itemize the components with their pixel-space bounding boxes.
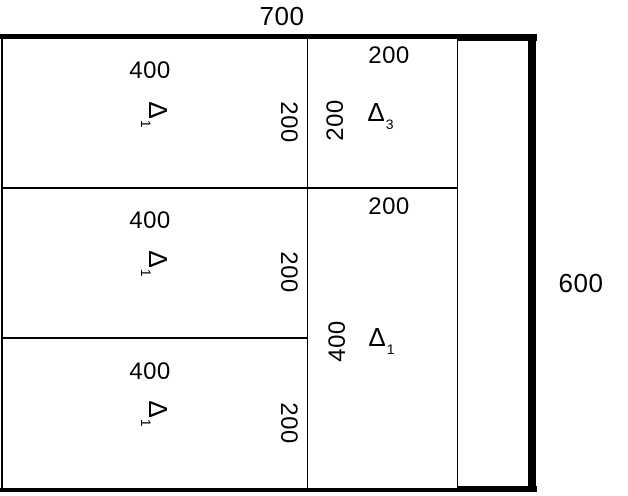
delta-subscript: 1 bbox=[139, 120, 153, 128]
left-room-3-width-dimension: 400 bbox=[129, 360, 171, 384]
delta-symbol: Δ bbox=[367, 97, 384, 127]
left-room-3-delta-marker: Δ1 bbox=[145, 400, 171, 425]
partition-vertical-1 bbox=[307, 36, 309, 488]
delta-subscript: 1 bbox=[139, 269, 153, 277]
left-room-2-width-dimension: 400 bbox=[129, 209, 171, 233]
left-room-1-width-dimension: 400 bbox=[129, 59, 171, 83]
middle-top-room-delta-marker: Δ3 bbox=[367, 99, 392, 125]
left-room-2-delta-marker: Δ1 bbox=[145, 250, 171, 275]
overall-width-dimension: 700 bbox=[260, 3, 305, 29]
overall-height-dimension: 600 bbox=[559, 270, 604, 296]
delta-subscript: 1 bbox=[387, 342, 395, 356]
delta-subscript: 3 bbox=[386, 117, 394, 131]
middle-top-room-width-dimension: 200 bbox=[368, 44, 410, 68]
delta-symbol: Δ bbox=[143, 400, 173, 417]
delta-subscript: 1 bbox=[139, 419, 153, 427]
delta-symbol: Δ bbox=[143, 101, 173, 118]
middle-top-room-height-dimension: 200 bbox=[324, 99, 348, 141]
middle-bottom-room-delta-marker: Δ1 bbox=[368, 324, 393, 350]
wall-left bbox=[1, 34, 4, 492]
middle-bottom-room-width-dimension: 200 bbox=[368, 195, 410, 219]
left-room-1-delta-marker: Δ1 bbox=[145, 101, 171, 126]
partition-horizontal-2 bbox=[1, 337, 307, 339]
floor-plan-drawing: 700 600 400 Δ1 200 400 Δ1 200 400 Δ1 200… bbox=[0, 0, 628, 496]
delta-symbol: Δ bbox=[368, 322, 385, 352]
left-room-1-height-dimension: 200 bbox=[276, 101, 300, 143]
wall-top-right-segment bbox=[457, 34, 537, 41]
wall-bottom-right-segment bbox=[457, 486, 537, 493]
partition-vertical-2 bbox=[457, 36, 459, 488]
left-room-3-height-dimension: 200 bbox=[276, 402, 300, 444]
middle-bottom-room-height-dimension: 400 bbox=[326, 320, 350, 362]
partition-horizontal-1 bbox=[1, 187, 457, 189]
left-room-2-height-dimension: 200 bbox=[276, 251, 300, 293]
delta-symbol: Δ bbox=[143, 250, 173, 267]
shear-wall-right bbox=[528, 34, 536, 492]
